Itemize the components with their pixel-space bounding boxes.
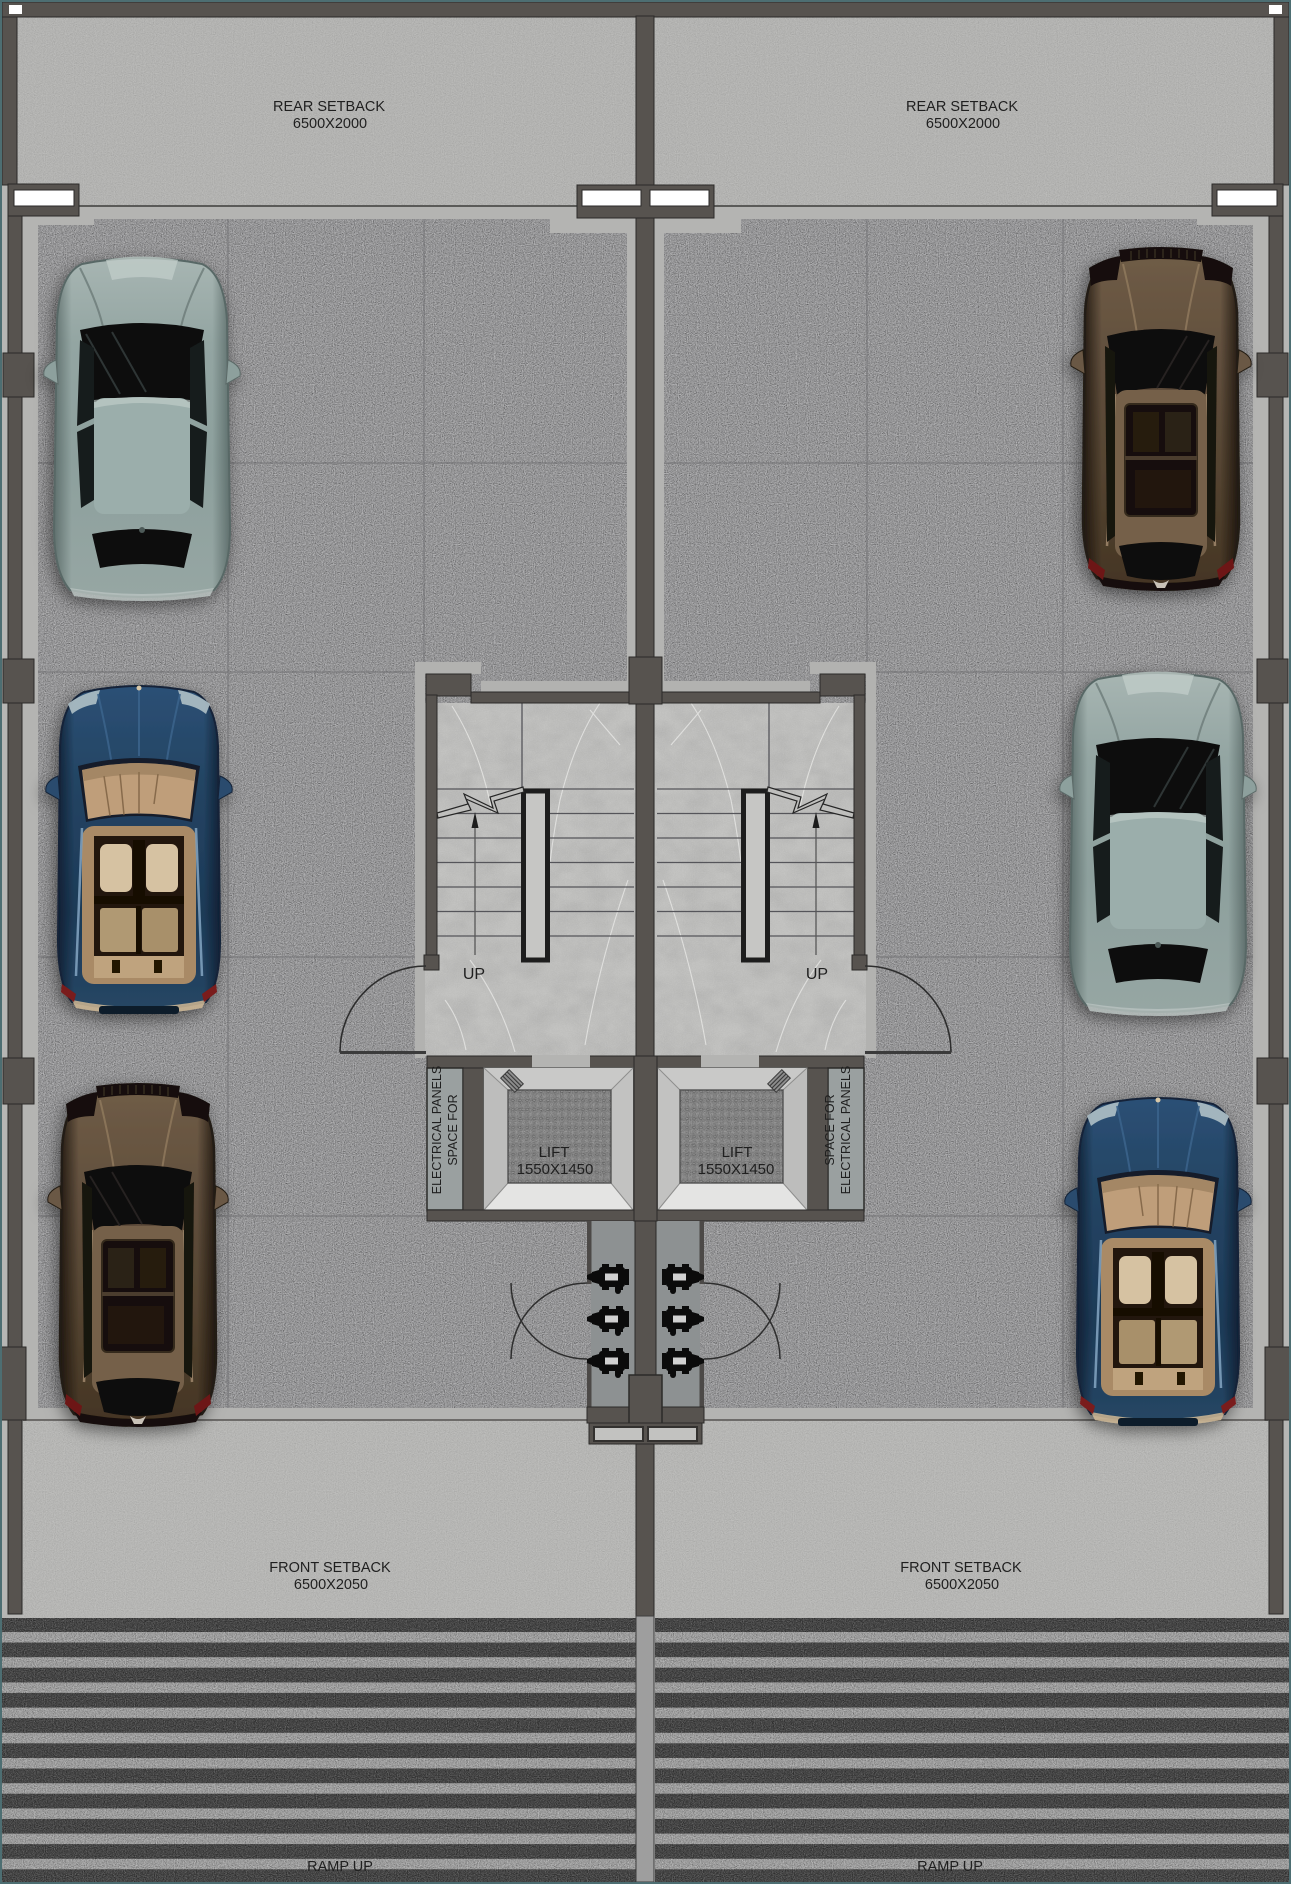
svg-text:6500X2000: 6500X2000 <box>293 116 367 132</box>
svg-text:LIFT: LIFT <box>539 1144 570 1161</box>
svg-text:SPACE FOR: SPACE FOR <box>823 1094 837 1165</box>
svg-text:FRONT SETBACK: FRONT SETBACK <box>900 1560 1022 1576</box>
svg-text:LIFT: LIFT <box>722 1144 753 1161</box>
svg-text:UP: UP <box>463 966 485 983</box>
svg-text:RAMP UP: RAMP UP <box>307 1859 373 1875</box>
svg-text:UP: UP <box>806 966 828 983</box>
svg-text:6500X2050: 6500X2050 <box>294 1577 368 1593</box>
svg-text:SPACE FOR: SPACE FOR <box>446 1094 460 1165</box>
svg-text:ELECTRICAL PANELS: ELECTRICAL PANELS <box>430 1066 444 1195</box>
svg-text:REAR SETBACK: REAR SETBACK <box>273 99 385 115</box>
svg-text:1550X1450: 1550X1450 <box>517 1161 594 1178</box>
svg-text:REAR SETBACK: REAR SETBACK <box>906 99 1018 115</box>
svg-text:1550X1450: 1550X1450 <box>698 1161 775 1178</box>
svg-text:RAMP UP: RAMP UP <box>917 1859 983 1875</box>
svg-text:6500X2000: 6500X2000 <box>926 116 1000 132</box>
svg-text:6500X2050: 6500X2050 <box>925 1577 999 1593</box>
svg-text:FRONT SETBACK: FRONT SETBACK <box>269 1560 391 1576</box>
svg-text:ELECTRICAL PANELS: ELECTRICAL PANELS <box>839 1066 853 1195</box>
